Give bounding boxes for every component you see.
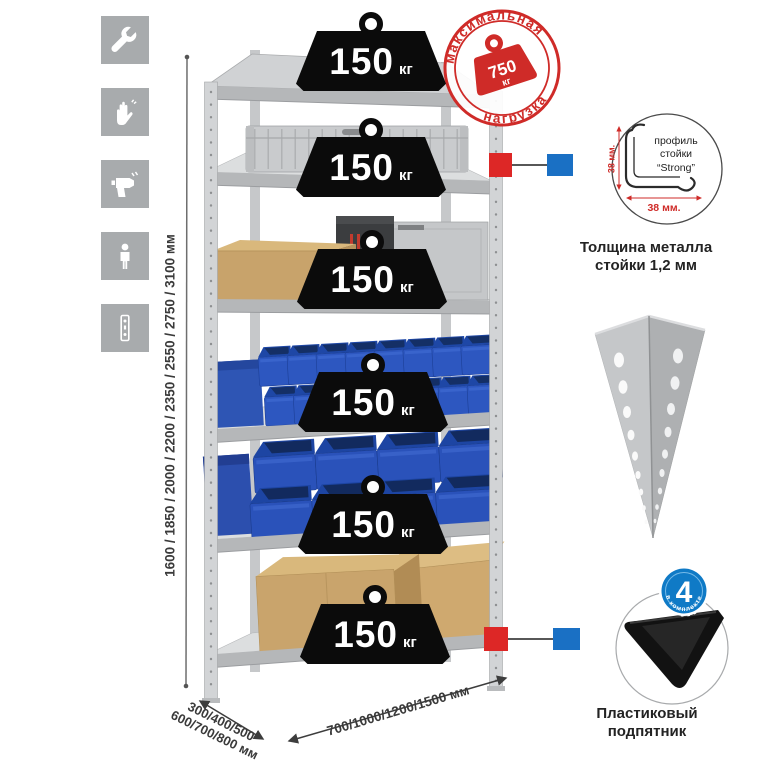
profile-label-2: стойки <box>660 148 692 160</box>
foot-caption: Пластиковый подпятник <box>562 705 732 742</box>
shelf-load-badge: 150кг <box>297 230 447 309</box>
load-value: 150 <box>329 149 394 186</box>
shelf-load-badge: 150кг <box>296 118 446 197</box>
profile-label-3: “Strong” <box>657 162 695 174</box>
shelf-load-badge: 150кг <box>300 585 450 664</box>
load-value: 150 <box>330 261 395 298</box>
load-unit: кг <box>403 635 417 650</box>
red-marker-bottom <box>484 627 508 651</box>
front-right-post <box>487 91 505 691</box>
height-dimension-label: 1600 / 1850 / 2000 / 2200 / 2350 / 2550 … <box>163 176 178 636</box>
load-unit: кг <box>401 403 415 418</box>
shelf-load-badge: 150кг <box>296 12 446 91</box>
profile-label-1: профиль <box>654 135 698 147</box>
badge-value: 4 <box>676 576 693 609</box>
upright-post-photo <box>595 316 705 538</box>
profile-dim-horizontal: 38 мм. <box>647 202 680 214</box>
load-value: 150 <box>331 506 396 543</box>
load-unit: кг <box>401 525 415 540</box>
front-left-post <box>202 82 220 703</box>
load-value: 150 <box>333 616 398 653</box>
foot-caption-line1: Пластиковый <box>596 705 697 722</box>
profile-caption: Толщина металла стойки 1,2 мм <box>561 239 731 276</box>
load-value: 150 <box>329 43 394 80</box>
foot-caption-line2: подпятник <box>608 723 687 740</box>
quantity-badge: 4 в комплекте <box>659 566 709 616</box>
blue-marker-bottom <box>553 628 580 650</box>
profile-caption-line2: стойки 1,2 мм <box>595 257 697 274</box>
height-dimension-line <box>184 55 190 689</box>
load-unit: кг <box>399 62 413 77</box>
connector-top <box>489 153 573 177</box>
load-unit: кг <box>399 168 413 183</box>
profile-detail-circle: 38 мм. 38 мм. профиль стойки “Strong” <box>607 114 723 224</box>
profile-dim-vertical: 38 мм. <box>607 145 617 173</box>
connector-bottom <box>484 627 580 651</box>
load-unit: кг <box>400 280 414 295</box>
profile-caption-line1: Толщина металла <box>580 239 712 256</box>
shelf-load-badge: 150кг <box>298 475 448 554</box>
foot-detail-circle: 4 в комплекте <box>616 566 728 704</box>
shelf-load-badge: 150кг <box>298 353 448 432</box>
load-value: 150 <box>331 384 396 421</box>
red-marker-top <box>489 153 512 177</box>
blue-marker-top <box>547 154 573 176</box>
